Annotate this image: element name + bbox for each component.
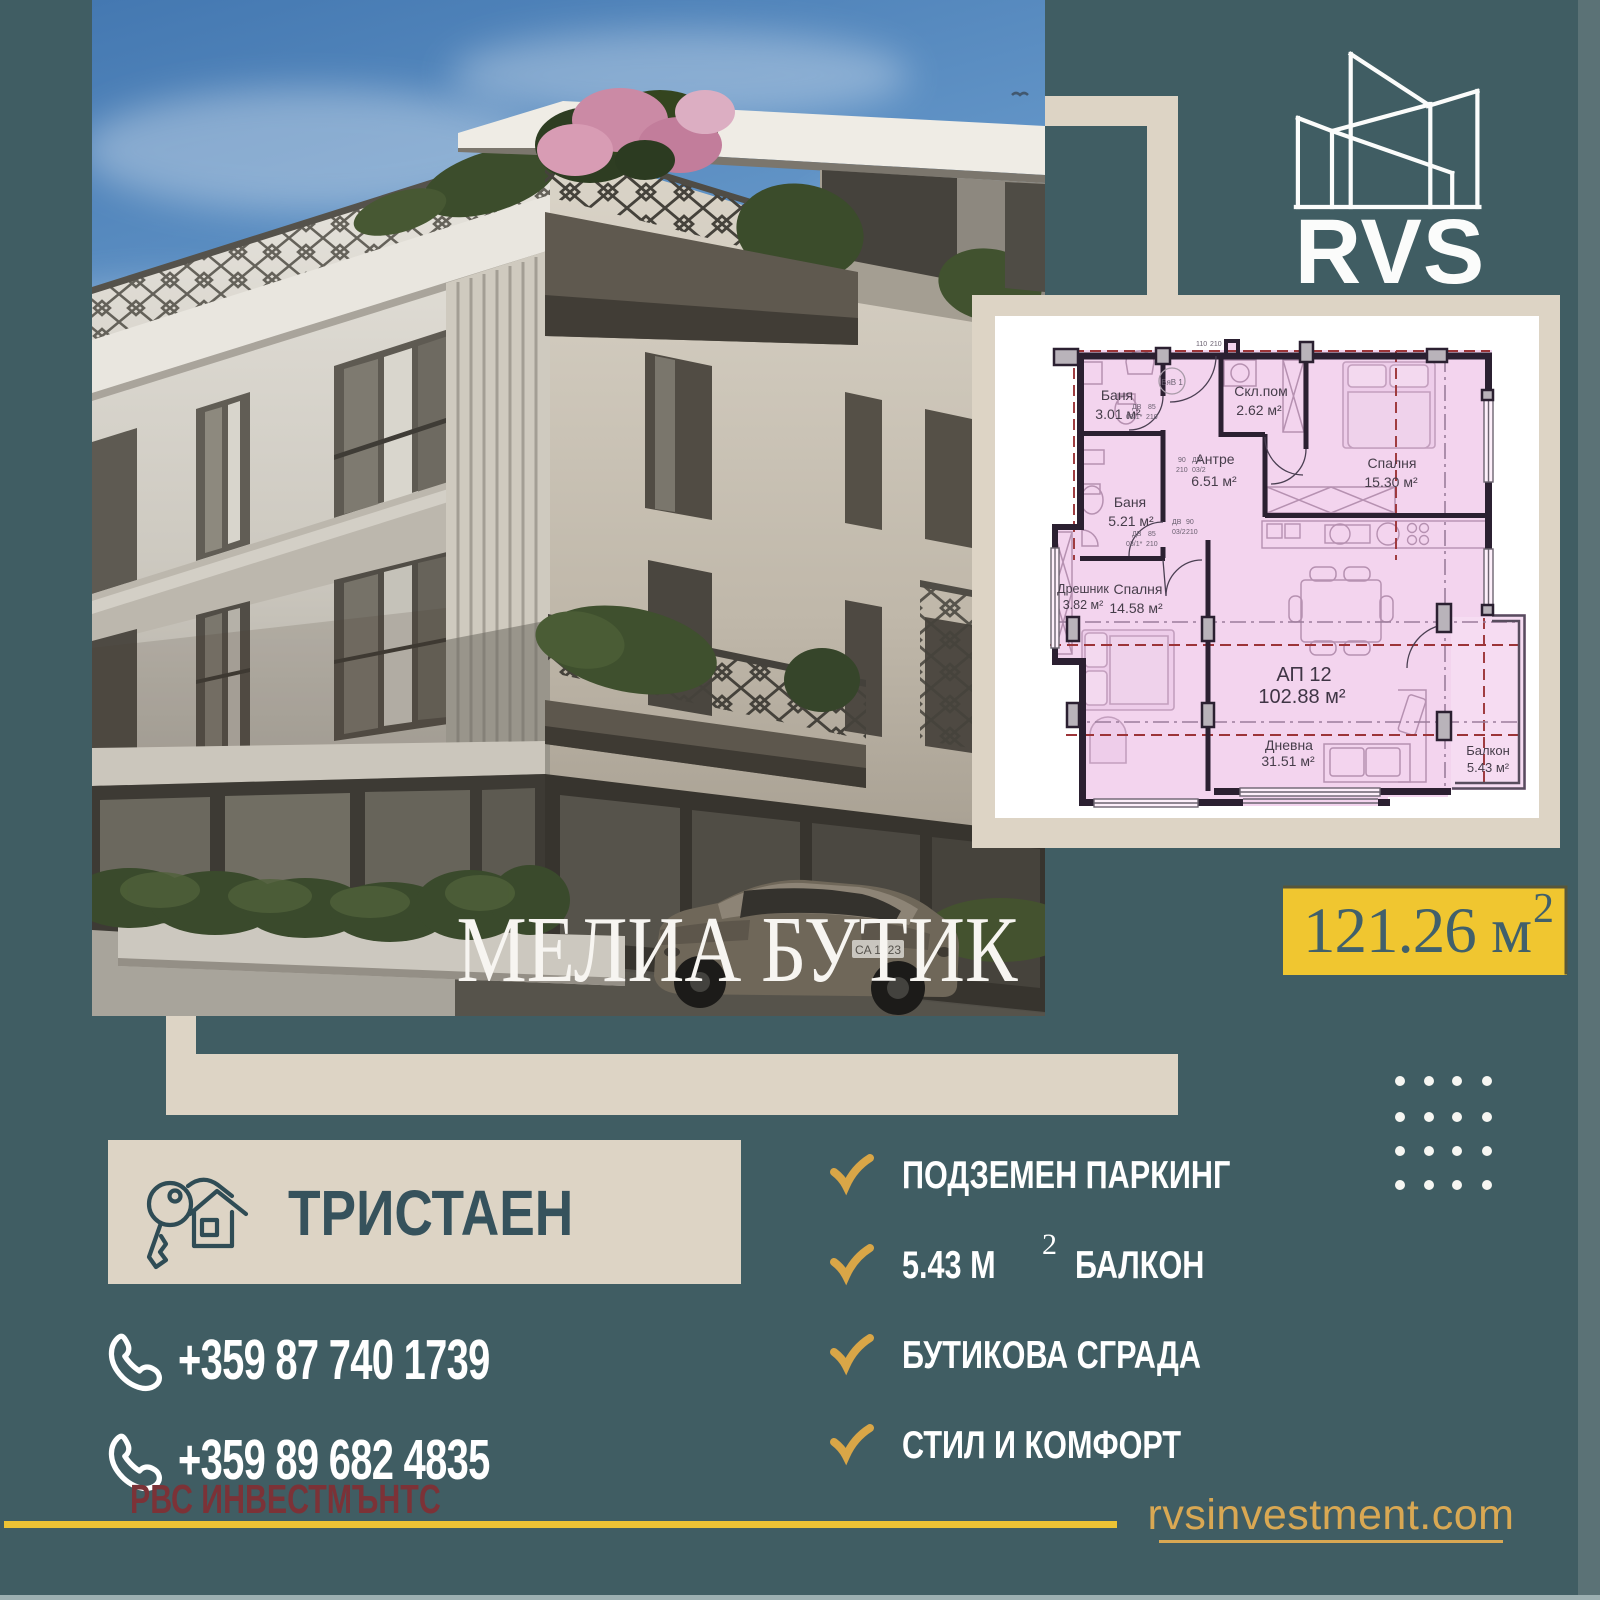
svg-text:03/2: 03/2: [1192, 467, 1206, 474]
svg-text:85: 85: [1148, 404, 1156, 411]
svg-text:Баня: Баня: [1101, 387, 1133, 403]
svg-text:RVS: RVS: [1295, 201, 1486, 303]
svg-text:ДВ: ДВ: [1192, 457, 1202, 464]
svg-text:90: 90: [1186, 519, 1194, 526]
svg-text:АП 12: АП 12: [1276, 664, 1331, 686]
svg-text:85: 85: [1148, 531, 1156, 538]
svg-text:Спалня: Спалня: [1114, 581, 1163, 597]
svg-text:СТИЛ И КОМФОРТ: СТИЛ И КОМФОРТ: [902, 1424, 1182, 1467]
svg-text:90: 90: [1178, 457, 1186, 464]
svg-text:БАЛКОН: БАЛКОН: [1075, 1244, 1204, 1287]
svg-text:210: 210: [1146, 414, 1158, 421]
svg-text:Спалня: Спалня: [1368, 455, 1417, 471]
svg-text:МЕЛИА БУТИК: МЕЛИА БУТИК: [456, 898, 1018, 1002]
svg-text:03/1*: 03/1*: [1126, 414, 1143, 421]
svg-text:ДВ: ДВ: [1132, 404, 1142, 411]
svg-text:210: 210: [1210, 341, 1222, 348]
svg-text:rvsinvestment.com: rvsinvestment.com: [1148, 1491, 1515, 1539]
svg-text:БУТИКОВА СГРАДА: БУТИКОВА СГРАДА: [902, 1334, 1201, 1377]
svg-text:ДВ: ДВ: [1132, 531, 1142, 538]
svg-text:14.58 м²: 14.58 м²: [1109, 600, 1163, 616]
svg-text:110: 110: [1196, 341, 1207, 348]
svg-text:5.43 м²: 5.43 м²: [1467, 760, 1510, 775]
svg-text:ДВ: ДВ: [1172, 519, 1182, 526]
svg-text:210: 210: [1146, 541, 1158, 548]
svg-text:5.43 М: 5.43 М: [902, 1244, 996, 1287]
svg-text:121.26 м: 121.26 м: [1303, 895, 1531, 967]
svg-text:ПОДЗЕМЕН ПАРКИНГ: ПОДЗЕМЕН ПАРКИНГ: [902, 1154, 1230, 1197]
svg-text:3.82 м²: 3.82 м²: [1063, 598, 1104, 612]
svg-text:03/2: 03/2: [1172, 529, 1186, 536]
svg-text:ТРИСТАЕН: ТРИСТАЕН: [288, 1178, 573, 1249]
svg-text:+359 87 740 1739: +359 87 740 1739: [178, 1328, 490, 1392]
svg-text:Дневна: Дневна: [1265, 737, 1313, 753]
svg-text:210: 210: [1186, 529, 1198, 536]
svg-text:Балкон: Балкон: [1466, 743, 1510, 758]
svg-text:102.88 м²: 102.88 м²: [1258, 686, 1345, 708]
svg-text:31.51 м²: 31.51 м²: [1261, 753, 1315, 769]
svg-text:РВС ИНВЕСТМЪНТС: РВС ИНВЕСТМЪНТС: [130, 1475, 441, 1522]
svg-text:Дрешник: Дрешник: [1057, 582, 1109, 596]
svg-text:БяВ 1: БяВ 1: [1161, 378, 1183, 387]
svg-text:03/1*: 03/1*: [1126, 541, 1143, 548]
svg-text:Скл.пом: Скл.пом: [1234, 383, 1287, 399]
svg-text:2: 2: [1533, 886, 1554, 932]
svg-text:15.30 м²: 15.30 м²: [1364, 474, 1418, 490]
svg-text:2.62 м²: 2.62 м²: [1236, 402, 1282, 418]
svg-text:5.21 м²: 5.21 м²: [1108, 513, 1154, 529]
svg-text:Баня: Баня: [1114, 494, 1146, 510]
svg-text:2: 2: [1042, 1228, 1057, 1261]
svg-text:6.51 м²: 6.51 м²: [1191, 473, 1237, 489]
svg-text:210: 210: [1176, 467, 1188, 474]
